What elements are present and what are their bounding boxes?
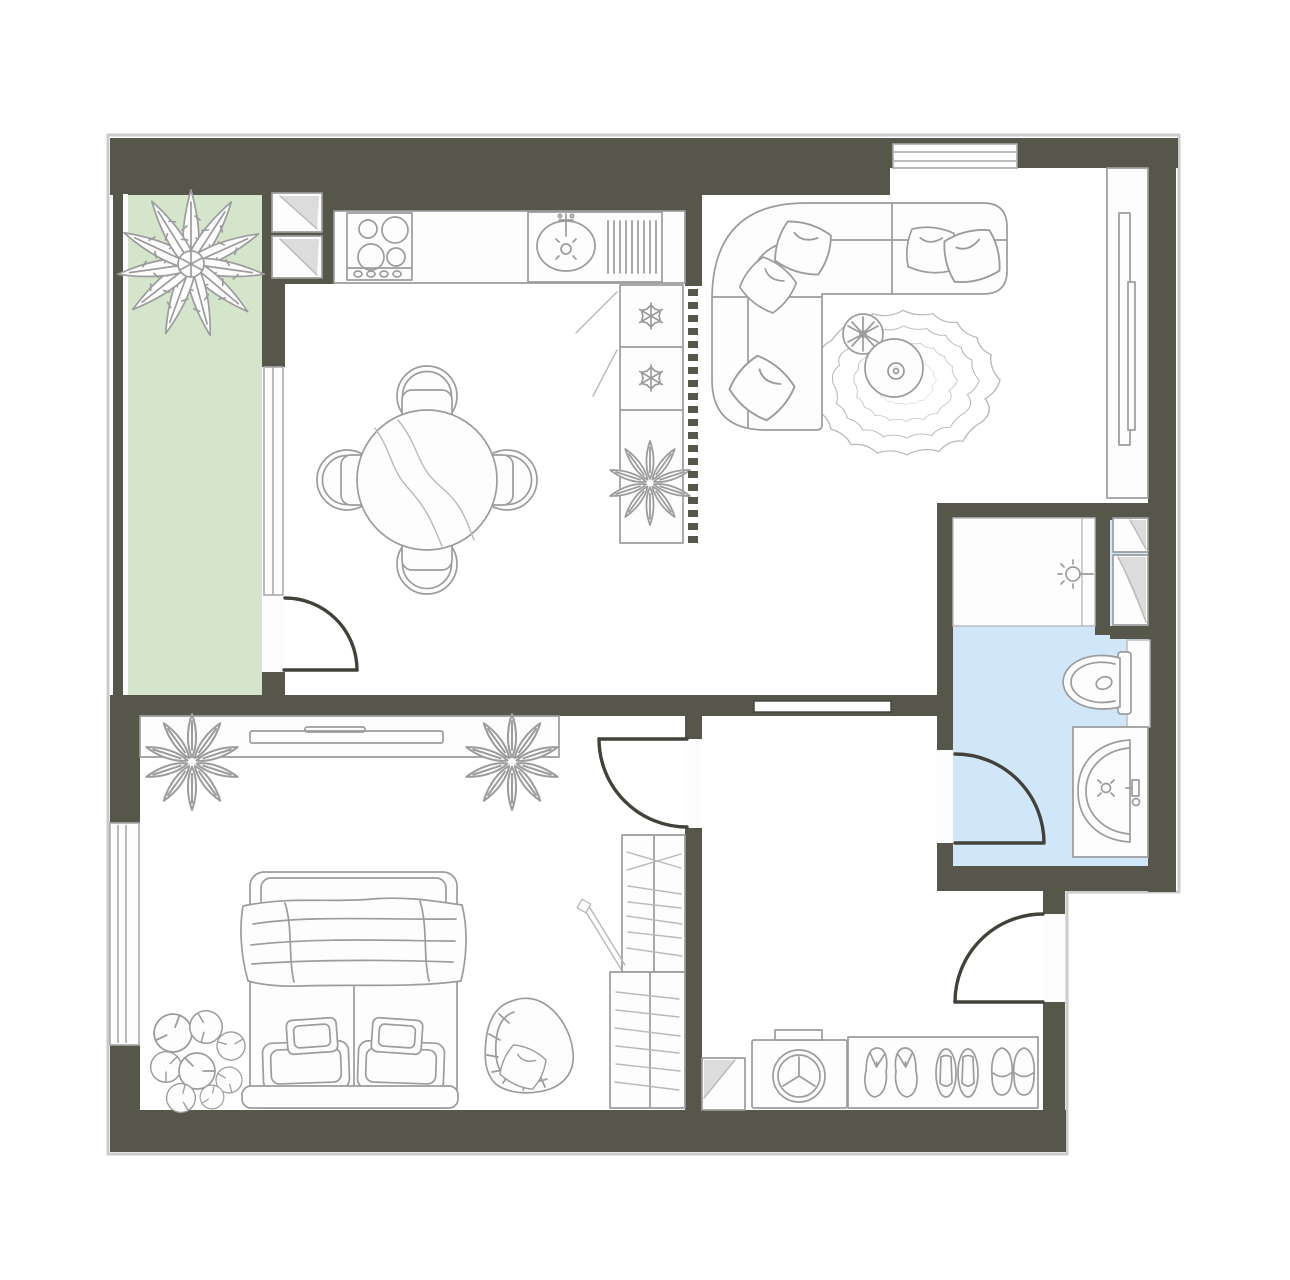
corner-cabinet [702,1058,745,1110]
wall-cabinet [272,193,322,232]
living-room [712,168,1148,498]
bedroom-door [599,739,687,827]
washing-machine [752,1030,847,1108]
floor-plan [0,0,1290,1280]
pillow-small [286,1017,338,1054]
bedroom-left-window [110,823,139,1045]
kitchen-sink [528,212,662,282]
shower-area [953,518,1095,626]
closed-slipper [1014,1048,1034,1095]
shoe-rack [848,1037,1038,1108]
hallway [702,1030,1038,1110]
headboard [242,1086,458,1108]
dining-table [357,410,497,550]
balcony-glass-line [123,194,128,695]
stove [347,213,412,280]
flip-flop [894,1047,918,1097]
closed-slipper [992,1048,1012,1095]
balcony-door-glazing [264,367,283,595]
wall-cabinet [272,236,322,278]
sliding-door-living [754,701,891,712]
fridge-freezer [576,285,691,543]
double-bed [241,872,466,1108]
wardrobe-open-door [586,908,625,969]
pillow-small [371,1017,423,1054]
coffee-table [865,339,923,397]
monstera-floor-plant [149,1005,250,1118]
bean-bag-chair [485,998,573,1093]
floor-plan-canvas [0,0,1290,1280]
wash-basin [1073,727,1148,857]
bath-cabinet [1113,518,1148,552]
kitchen-dining [272,193,698,594]
open-slipper [958,1049,978,1097]
bedroom [140,714,685,1118]
slat-partition [688,289,698,543]
open-slipper [936,1049,956,1097]
living-room-top-window [893,144,1017,168]
dining-set [317,366,537,594]
bath-cabinet [1113,555,1148,625]
entrance-door [955,914,1043,1002]
tv-console [1107,168,1148,498]
balcony-door [284,598,357,670]
open-wardrobe [577,835,685,1108]
